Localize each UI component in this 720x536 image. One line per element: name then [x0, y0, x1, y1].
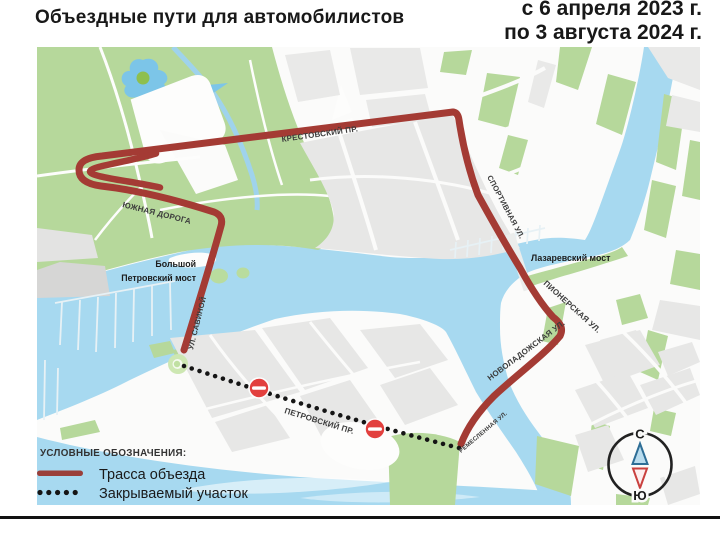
svg-text:Большой: Большой	[155, 259, 196, 269]
svg-text:УСЛОВНЫЕ ОБОЗНАЧЕНИЯ:: УСЛОВНЫЕ ОБОЗНАЧЕНИЯ:	[40, 448, 186, 459]
svg-text:Ю: Ю	[633, 488, 646, 503]
svg-text:Лазаревский мост: Лазаревский мост	[531, 253, 611, 263]
svg-text:С: С	[635, 427, 645, 442]
svg-text:Трасса объезда: Трасса объезда	[99, 467, 206, 483]
svg-text:Закрываемый участок: Закрываемый участок	[99, 486, 249, 502]
svg-text:Петровский мост: Петровский мост	[121, 273, 196, 283]
